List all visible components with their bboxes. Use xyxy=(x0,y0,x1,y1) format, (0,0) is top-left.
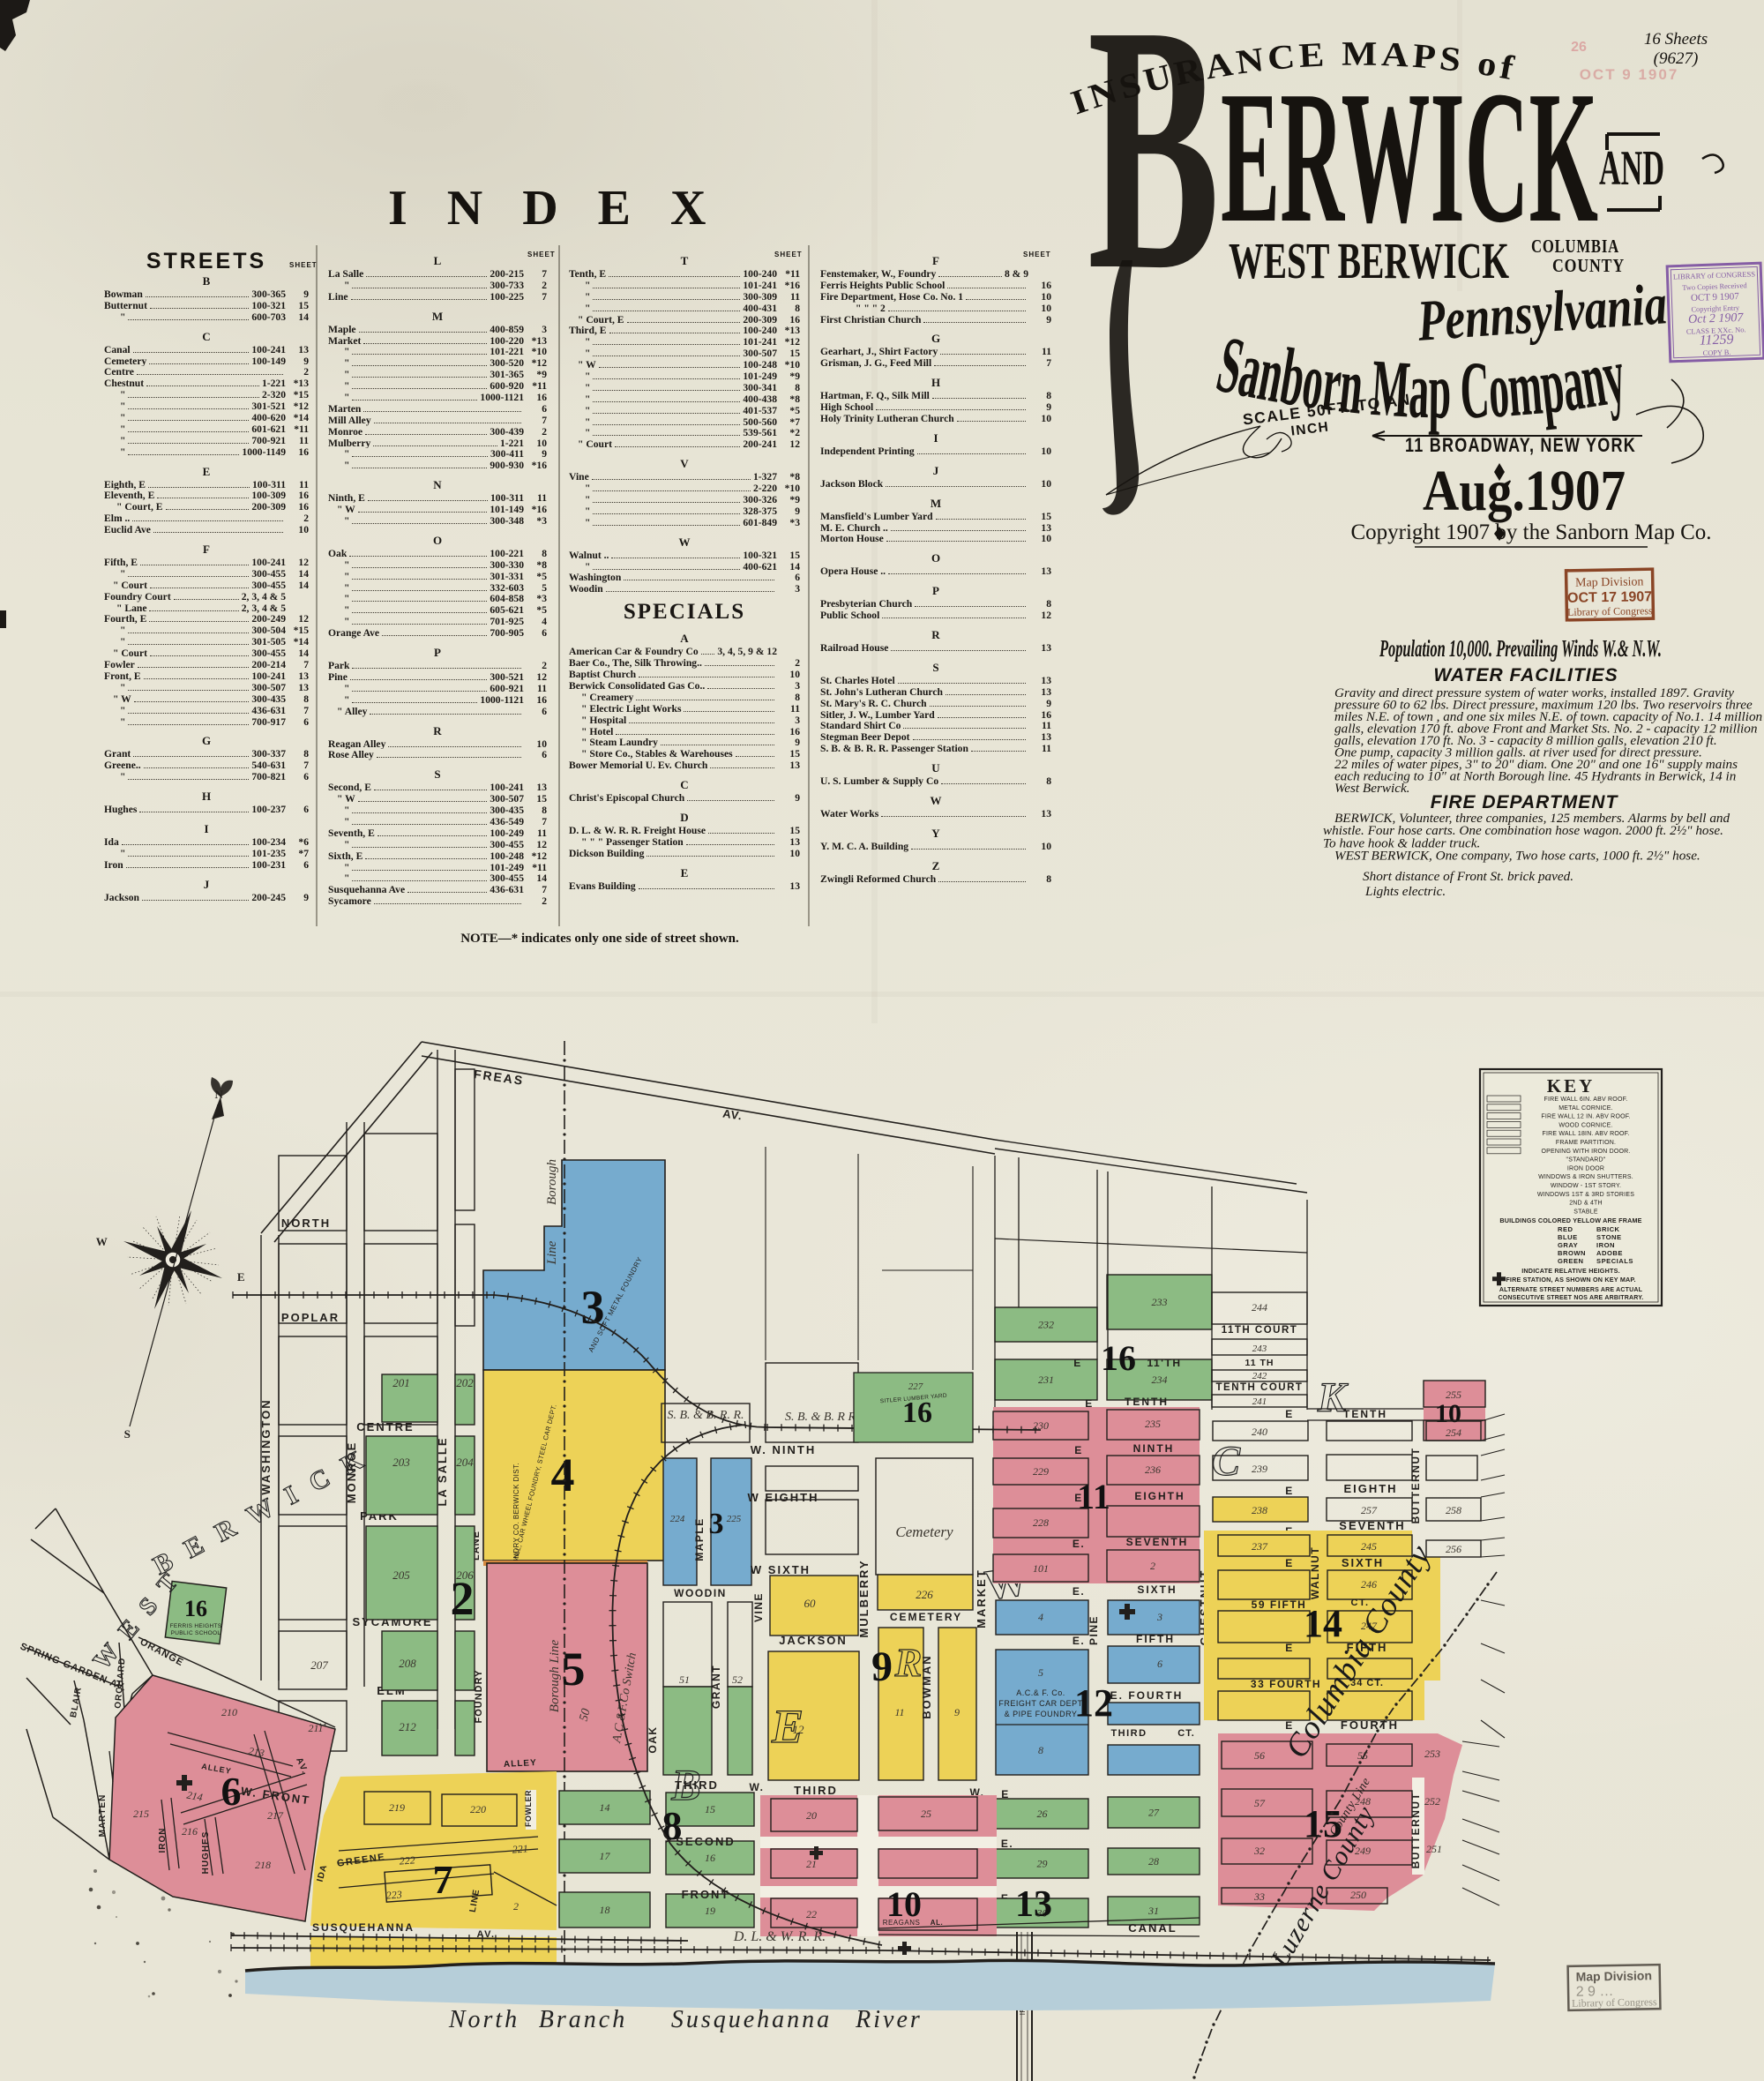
svg-text:26: 26 xyxy=(1571,40,1587,55)
svg-text:21: 21 xyxy=(806,1858,817,1870)
svg-text:SIXTH: SIXTH xyxy=(1137,1583,1177,1596)
svg-text:238: 238 xyxy=(1252,1504,1267,1516)
svg-text:Branch: Branch xyxy=(539,2006,627,2033)
svg-text:57: 57 xyxy=(1254,1797,1266,1809)
svg-text:210: 210 xyxy=(221,1706,237,1718)
svg-text:E: E xyxy=(1074,1444,1083,1456)
svg-text:204: 204 xyxy=(456,1456,474,1469)
svg-text:CT.: CT. xyxy=(1177,1728,1195,1739)
svg-text:S. B. & B. R. R.: S. B. & B. R. R. xyxy=(667,1409,744,1422)
svg-text:BUILDINGS COLORED YELLOW ARE F: BUILDINGS COLORED YELLOW ARE FRAME xyxy=(1499,1216,1641,1224)
svg-text:Population 10,000. Prevailing: Population 10,000. Prevailing Winds W.& … xyxy=(1379,635,1662,662)
svg-text:"STANDARD": "STANDARD" xyxy=(1566,1157,1606,1164)
svg-text:S. B. & B. R R: S. B. & B. R R xyxy=(785,1411,856,1424)
svg-text:205: 205 xyxy=(392,1568,410,1582)
svg-text:TENTH: TENTH xyxy=(1125,1396,1169,1408)
svg-text:212: 212 xyxy=(399,1720,416,1733)
svg-text:28: 28 xyxy=(1148,1855,1159,1868)
svg-text:Cemetery: Cemetery xyxy=(895,1523,953,1540)
svg-text:27: 27 xyxy=(1148,1807,1160,1819)
svg-text:WEST BERWICK, One company, Two: WEST BERWICK, One company, Two hose cart… xyxy=(1334,849,1700,864)
svg-text:Map Division: Map Division xyxy=(1575,575,1644,589)
svg-text:225: 225 xyxy=(727,1514,742,1524)
svg-text:WINDOW - 1ST STORY.: WINDOW - 1ST STORY. xyxy=(1551,1183,1621,1189)
svg-text:REAGANS: REAGANS xyxy=(883,1919,921,1927)
svg-text:11'TH: 11'TH xyxy=(1147,1357,1181,1369)
svg-text:Borough Line: Borough Line xyxy=(548,1639,562,1712)
svg-text:FREAS: FREAS xyxy=(473,1067,525,1088)
svg-text:E.: E. xyxy=(1001,1838,1013,1850)
svg-text:227: 227 xyxy=(908,1381,923,1392)
svg-text:203: 203 xyxy=(392,1456,410,1469)
svg-text:W. NINTH: W. NINTH xyxy=(751,1443,817,1456)
svg-text:31: 31 xyxy=(1147,1905,1159,1917)
svg-text:ALLEY: ALLEY xyxy=(504,1758,537,1770)
svg-text:221: 221 xyxy=(512,1842,528,1855)
svg-text:ADOBE: ADOBE xyxy=(1596,1249,1623,1257)
svg-text:CEMETERY: CEMETERY xyxy=(890,1611,962,1623)
svg-text:229: 229 xyxy=(1033,1465,1049,1478)
svg-text:THIRD: THIRD xyxy=(1110,1728,1147,1739)
svg-text:215: 215 xyxy=(133,1808,149,1820)
svg-text:FOUNDRY: FOUNDRY xyxy=(474,1670,484,1724)
svg-text:POPLAR: POPLAR xyxy=(281,1311,340,1324)
svg-text:6: 6 xyxy=(221,1769,242,1814)
svg-text:29: 29 xyxy=(1037,1858,1048,1870)
svg-text:COLUMBIA: COLUMBIA xyxy=(1531,236,1619,257)
svg-text:SEVENTH: SEVENTH xyxy=(1126,1536,1189,1548)
svg-text:B: B xyxy=(1088,0,1220,343)
svg-text:FRAME PARTITION.: FRAME PARTITION. xyxy=(1556,1140,1616,1146)
svg-text:WINDOWS 1ST & 3RD STORIES: WINDOWS 1ST & 3RD STORIES xyxy=(1537,1192,1634,1198)
svg-text:253: 253 xyxy=(1424,1748,1440,1760)
svg-text:WASHINGTON: WASHINGTON xyxy=(259,1398,273,1494)
svg-text:Library of Congress: Library of Congress xyxy=(1567,604,1653,618)
svg-text:THIRD: THIRD xyxy=(675,1778,719,1792)
svg-text:252: 252 xyxy=(1424,1795,1440,1808)
svg-text:E: E xyxy=(1073,1357,1082,1369)
svg-text:SEVENTH: SEVENTH xyxy=(1339,1519,1405,1532)
svg-text:241: 241 xyxy=(1252,1396,1267,1407)
svg-text:22: 22 xyxy=(806,1908,817,1920)
svg-text:D. L. & W. R. R.: D. L. & W. R. R. xyxy=(733,1929,826,1944)
svg-text:JACKSON: JACKSON xyxy=(779,1634,848,1647)
svg-text:TENTH: TENTH xyxy=(1343,1408,1387,1420)
svg-text:SPECIALS: SPECIALS xyxy=(1596,1257,1633,1265)
svg-text:R: R xyxy=(894,1640,923,1685)
svg-text:235: 235 xyxy=(1145,1418,1161,1430)
svg-text:WINDOWS & IRON SHUTTERS.: WINDOWS & IRON SHUTTERS. xyxy=(1538,1174,1633,1180)
svg-text:OCT 9 1907: OCT 9 1907 xyxy=(1580,66,1679,83)
svg-text:WOOD CORNICE.: WOOD CORNICE. xyxy=(1558,1122,1612,1128)
svg-text:226: 226 xyxy=(916,1588,933,1601)
svg-text:KEY: KEY xyxy=(1547,1075,1596,1097)
svg-text:2: 2 xyxy=(513,1900,519,1913)
svg-text:246: 246 xyxy=(1361,1578,1377,1591)
svg-text:BLUE: BLUE xyxy=(1558,1233,1578,1241)
svg-text:EIGHTH: EIGHTH xyxy=(1343,1482,1397,1495)
svg-text:VINE: VINE xyxy=(752,1592,765,1622)
svg-text:242: 242 xyxy=(1252,1371,1267,1381)
svg-text:FIRE DEPARTMENT: FIRE DEPARTMENT xyxy=(1431,792,1619,812)
svg-text:208: 208 xyxy=(399,1657,416,1670)
svg-text:236: 236 xyxy=(1145,1463,1161,1476)
svg-text:E: E xyxy=(1285,1408,1294,1420)
svg-text:E: E xyxy=(1285,1485,1294,1497)
svg-text:BUTTERNUT: BUTTERNUT xyxy=(1409,1793,1422,1869)
svg-text:E: E xyxy=(1285,1642,1294,1654)
svg-text:West Berwick.: West Berwick. xyxy=(1334,781,1409,796)
svg-text:E. FOURTH: E. FOURTH xyxy=(1110,1689,1184,1702)
svg-text:18: 18 xyxy=(600,1904,610,1916)
svg-text:STABLE: STABLE xyxy=(1573,1209,1598,1215)
svg-text:NORTH: NORTH xyxy=(281,1216,331,1230)
svg-text:E.: E. xyxy=(1073,1538,1085,1550)
svg-text:11259: 11259 xyxy=(1699,332,1733,348)
svg-text:OCT 17 1907: OCT 17 1907 xyxy=(1567,589,1652,606)
svg-text:9: 9 xyxy=(954,1706,960,1718)
svg-text:BROWN: BROWN xyxy=(1558,1249,1586,1257)
svg-text:228: 228 xyxy=(1033,1516,1049,1529)
svg-text:26: 26 xyxy=(1037,1808,1048,1820)
svg-text:AND: AND xyxy=(1599,141,1664,196)
svg-text:13: 13 xyxy=(1015,1884,1052,1925)
svg-text:2: 2 xyxy=(1150,1560,1155,1572)
svg-text:52: 52 xyxy=(732,1673,743,1686)
svg-text:River: River xyxy=(855,2006,923,2033)
svg-text:10: 10 xyxy=(1435,1399,1461,1428)
svg-text:E.: E. xyxy=(1073,1635,1085,1647)
svg-text:FERRIS HEIGHTS: FERRIS HEIGHTS xyxy=(170,1623,222,1629)
svg-text:THIRD: THIRD xyxy=(794,1784,838,1797)
svg-text:237: 237 xyxy=(1252,1540,1268,1553)
svg-text:INDICATE RELATIVE HEIGHTS.: INDICATE RELATIVE HEIGHTS. xyxy=(1521,1267,1620,1275)
svg-text:FIRE WALL 18IN. ABV ROOF.: FIRE WALL 18IN. ABV ROOF. xyxy=(1542,1131,1629,1137)
svg-text:Map Division: Map Division xyxy=(1575,1968,1652,1984)
svg-text:33: 33 xyxy=(1253,1890,1265,1903)
svg-text:4: 4 xyxy=(551,1448,575,1501)
svg-text:11: 11 xyxy=(1077,1477,1110,1516)
svg-text:E: E xyxy=(237,1270,246,1284)
svg-text:101: 101 xyxy=(1033,1562,1049,1575)
svg-text:2: 2 xyxy=(451,1572,475,1625)
svg-text:BUTTERNUT: BUTTERNUT xyxy=(1409,1448,1422,1524)
svg-text:25: 25 xyxy=(921,1808,931,1820)
svg-text:ALTERNATE STREET NUMBERS ARE A: ALTERNATE STREET NUMBERS ARE ACTUAL xyxy=(1499,1287,1643,1293)
svg-text:Lights electric.: Lights electric. xyxy=(1364,884,1446,899)
svg-text:220: 220 xyxy=(470,1803,486,1815)
svg-text:231: 231 xyxy=(1038,1374,1054,1386)
svg-text:222: 222 xyxy=(399,1853,415,1867)
svg-text:59 FIFTH: 59 FIFTH xyxy=(1252,1598,1307,1611)
svg-text:251: 251 xyxy=(1426,1843,1442,1855)
svg-text:256: 256 xyxy=(1446,1543,1461,1555)
svg-text:202: 202 xyxy=(456,1376,474,1389)
svg-text:W.: W. xyxy=(750,1781,765,1793)
svg-text:COUNTY: COUNTY xyxy=(1552,255,1625,276)
svg-text:234: 234 xyxy=(1152,1374,1168,1386)
svg-text:240: 240 xyxy=(1252,1426,1267,1438)
svg-text:244: 244 xyxy=(1252,1301,1267,1314)
svg-text:North: North xyxy=(448,2006,519,2033)
svg-text:33 FOURTH: 33 FOURTH xyxy=(1251,1678,1321,1690)
svg-text:SUSQUEHANNA: SUSQUEHANNA xyxy=(312,1921,415,1934)
svg-text:HUGHES: HUGHES xyxy=(201,1831,211,1875)
svg-text:16 Sheets: 16 Sheets xyxy=(1644,30,1708,49)
svg-text:Aug.1907: Aug.1907 xyxy=(1423,459,1626,523)
svg-text:257: 257 xyxy=(1361,1504,1378,1516)
svg-text:WOODIN: WOODIN xyxy=(674,1587,727,1599)
svg-text:Short distance of Front St. br: Short distance of Front St. brick paved. xyxy=(1363,869,1573,884)
svg-text:2ND & 4TH: 2ND & 4TH xyxy=(1569,1201,1603,1207)
svg-text:WEST BERWICK: WEST BERWICK xyxy=(1229,232,1509,289)
svg-text:217: 217 xyxy=(267,1809,284,1822)
svg-text:15: 15 xyxy=(705,1803,715,1815)
svg-text:4: 4 xyxy=(1038,1611,1043,1623)
svg-text:16: 16 xyxy=(1101,1338,1136,1378)
svg-text:E: E xyxy=(771,1700,804,1753)
svg-text:MULBERRY: MULBERRY xyxy=(857,1559,871,1637)
svg-text:16: 16 xyxy=(705,1852,715,1864)
svg-text:E: E xyxy=(1285,1557,1294,1569)
svg-text:20: 20 xyxy=(806,1809,817,1822)
svg-text:232: 232 xyxy=(1038,1319,1054,1331)
svg-text:FIRE WALL 12 IN. ABV ROOF.: FIRE WALL 12 IN. ABV ROOF. xyxy=(1541,1114,1630,1120)
svg-text:COPY B.: COPY B. xyxy=(1703,348,1731,357)
svg-text:A.C.& F. Co.: A.C.& F. Co. xyxy=(1016,1688,1065,1697)
svg-text:W: W xyxy=(96,1235,109,1248)
svg-text:233: 233 xyxy=(1152,1296,1168,1308)
svg-text:E.: E. xyxy=(1073,1585,1085,1598)
svg-text:METAL CORNICE.: METAL CORNICE. xyxy=(1558,1105,1613,1112)
svg-text:LIBRARY of CONGRESS: LIBRARY of CONGRESS xyxy=(1673,269,1756,281)
svg-text:60: 60 xyxy=(804,1597,817,1610)
svg-text:ERWICK: ERWICK xyxy=(1221,51,1598,262)
svg-text:11TH COURT: 11TH COURT xyxy=(1222,1325,1298,1336)
svg-text:GREEN: GREEN xyxy=(1558,1257,1584,1265)
svg-text:258: 258 xyxy=(1446,1504,1461,1516)
svg-text:14: 14 xyxy=(1304,1602,1342,1645)
svg-text:AV.: AV. xyxy=(721,1107,743,1123)
svg-text:19: 19 xyxy=(705,1905,715,1917)
svg-text:216: 216 xyxy=(182,1825,198,1838)
svg-text:56: 56 xyxy=(1254,1749,1265,1762)
svg-text:7: 7 xyxy=(433,1857,453,1902)
svg-text:243: 243 xyxy=(1252,1344,1267,1354)
svg-text:BRICK: BRICK xyxy=(1596,1225,1620,1233)
svg-text:EIGHTH: EIGHTH xyxy=(1134,1490,1185,1502)
svg-text:250: 250 xyxy=(1350,1889,1366,1901)
svg-text:245: 245 xyxy=(1361,1540,1377,1553)
svg-text:Library of Congress: Library of Congress xyxy=(1572,1995,1657,2010)
svg-text:218: 218 xyxy=(255,1859,271,1871)
svg-text:GRANT: GRANT xyxy=(710,1665,722,1709)
svg-text:Copyright 1907 by the Sanborn: Copyright 1907 by the Sanborn Map Co. xyxy=(1350,520,1711,544)
svg-text:SECOND: SECOND xyxy=(676,1835,736,1848)
svg-text:MARTEN: MARTEN xyxy=(98,1794,108,1838)
svg-text:3: 3 xyxy=(709,1508,724,1540)
svg-text:211: 211 xyxy=(308,1722,323,1734)
svg-text:9: 9 xyxy=(871,1643,893,1690)
svg-text:224: 224 xyxy=(670,1514,685,1524)
svg-text:IRON DOOR: IRON DOOR xyxy=(1567,1165,1604,1171)
svg-text:IRON: IRON xyxy=(1596,1241,1615,1249)
svg-text:OCT 9 1907: OCT 9 1907 xyxy=(1691,291,1740,303)
svg-text:OPENING WITH IRON DOOR.: OPENING WITH IRON DOOR. xyxy=(1541,1149,1630,1155)
svg-text:OAK: OAK xyxy=(647,1725,659,1753)
svg-text:201: 201 xyxy=(392,1376,410,1389)
svg-text:FREIGHT CAR DEPT: FREIGHT CAR DEPT xyxy=(998,1699,1082,1708)
svg-text:CANAL: CANAL xyxy=(1128,1921,1177,1935)
svg-text:223: 223 xyxy=(385,1888,402,1901)
svg-text:SIXTH: SIXTH xyxy=(1342,1556,1384,1569)
svg-text:32: 32 xyxy=(1253,1845,1265,1857)
svg-text:17: 17 xyxy=(600,1850,611,1862)
svg-text:6: 6 xyxy=(1157,1658,1162,1670)
svg-text:3: 3 xyxy=(1156,1611,1162,1623)
svg-text:51: 51 xyxy=(679,1673,690,1686)
svg-text:WATER FACILITIES: WATER FACILITIES xyxy=(1433,665,1618,685)
svg-text:254: 254 xyxy=(1446,1426,1461,1439)
svg-text:219: 219 xyxy=(389,1801,405,1814)
svg-text:MAPLE: MAPLE xyxy=(693,1517,706,1561)
svg-text:11 BROADWAY, NEW YORK: 11 BROADWAY, NEW YORK xyxy=(1405,434,1636,456)
svg-text:C: C xyxy=(1212,1438,1241,1485)
svg-text:16: 16 xyxy=(184,1596,207,1621)
svg-text:11 TH: 11 TH xyxy=(1245,1358,1274,1368)
svg-text:Borough: Borough xyxy=(545,1159,559,1205)
svg-text:FOWLER: FOWLER xyxy=(524,1790,533,1827)
svg-text:FIRE STATION, AS SHOWN ON KEY: FIRE STATION, AS SHOWN ON KEY MAP. xyxy=(1506,1276,1635,1284)
svg-text:8: 8 xyxy=(1038,1744,1043,1756)
svg-text:Oct 2 1907: Oct 2 1907 xyxy=(1688,311,1745,326)
svg-text:RED: RED xyxy=(1558,1225,1573,1233)
svg-text:IRON: IRON xyxy=(158,1828,168,1853)
svg-text:CONSECUTIVE STREET NOS ARE ARB: CONSECUTIVE STREET NOS ARE ARBITRARY. xyxy=(1499,1295,1644,1301)
svg-text:5: 5 xyxy=(1038,1666,1043,1679)
svg-text:NINTH: NINTH xyxy=(1133,1442,1175,1455)
svg-text:239: 239 xyxy=(1252,1463,1267,1475)
svg-text:PINE: PINE xyxy=(1088,1615,1100,1645)
svg-text:Two Copies Received: Two Copies Received xyxy=(1682,281,1747,292)
svg-text:S: S xyxy=(124,1427,132,1441)
svg-text:PUBLIC SCHOOL: PUBLIC SCHOOL xyxy=(171,1630,221,1636)
svg-text:STONE: STONE xyxy=(1596,1233,1622,1241)
svg-text:Susquehanna: Susquehanna xyxy=(671,2006,832,2033)
svg-text:11: 11 xyxy=(894,1706,904,1718)
svg-text:W EIGHTH: W EIGHTH xyxy=(748,1491,819,1504)
svg-text:FOURTH: FOURTH xyxy=(1341,1718,1399,1732)
svg-text:FIFTH: FIFTH xyxy=(1136,1633,1175,1645)
svg-text:16: 16 xyxy=(902,1396,932,1429)
svg-text:TENTH COURT: TENTH COURT xyxy=(1216,1382,1304,1393)
svg-text:WALNUT: WALNUT xyxy=(1309,1546,1321,1599)
svg-text:Line: Line xyxy=(545,1240,559,1265)
svg-text:W SIXTH: W SIXTH xyxy=(751,1563,811,1576)
svg-text:207: 207 xyxy=(310,1658,328,1672)
svg-text:AL.: AL. xyxy=(931,1919,943,1927)
svg-text:FIRE WALL 6IN. ABV ROOF.: FIRE WALL 6IN. ABV ROOF. xyxy=(1544,1097,1628,1103)
svg-text:14: 14 xyxy=(600,1801,610,1814)
svg-text:(9627): (9627) xyxy=(1654,49,1699,68)
svg-text:& PIPE FOUNDRY: & PIPE FOUNDRY xyxy=(1005,1710,1078,1718)
svg-text:GRAY: GRAY xyxy=(1558,1241,1578,1249)
